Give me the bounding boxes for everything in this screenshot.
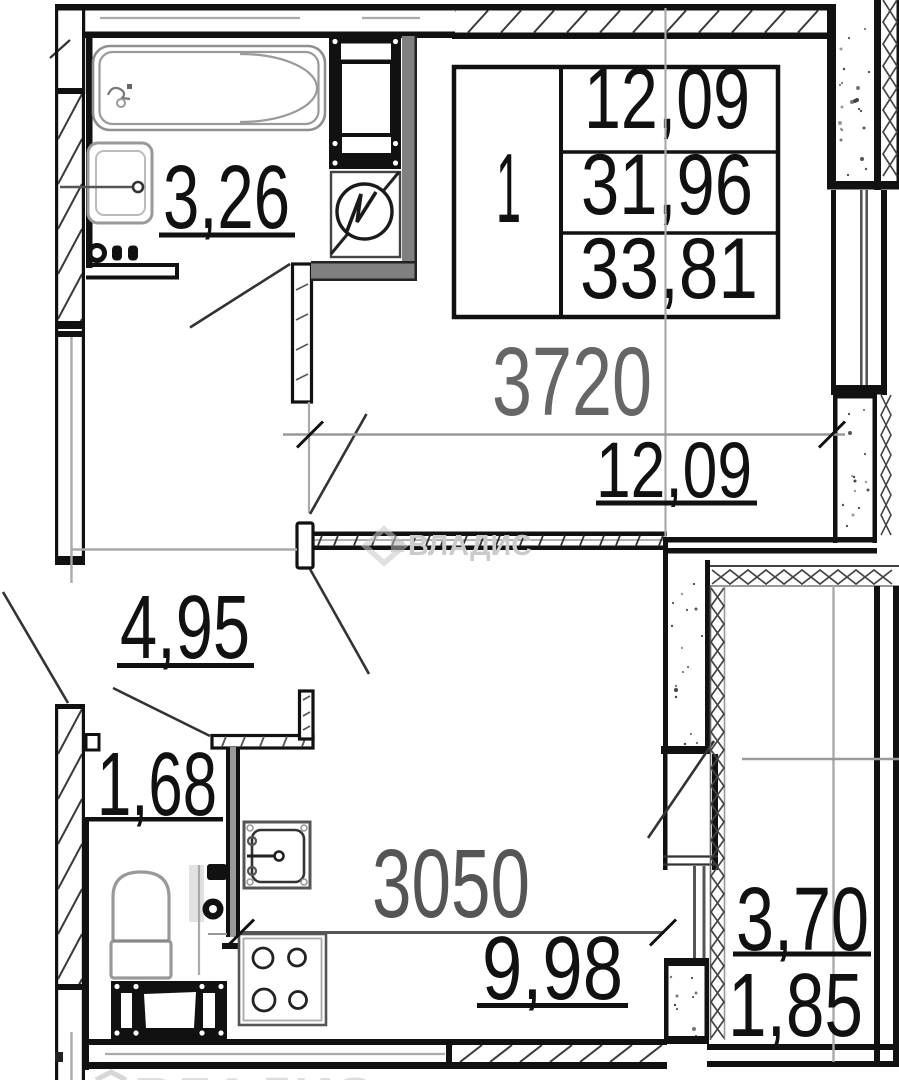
svg-text:ВЛАДИС: ВЛАДИС — [408, 530, 532, 562]
svg-text:ВЛАДИС: ВЛАДИС — [134, 1069, 374, 1080]
svg-text:31,96: 31,96 — [581, 137, 753, 233]
svg-text:1: 1 — [496, 133, 521, 243]
svg-text:12,09: 12,09 — [584, 51, 750, 147]
svg-text:1,85: 1,85 — [728, 956, 863, 1056]
svg-text:33,81: 33,81 — [580, 221, 758, 317]
svg-text:3720: 3720 — [492, 327, 652, 436]
